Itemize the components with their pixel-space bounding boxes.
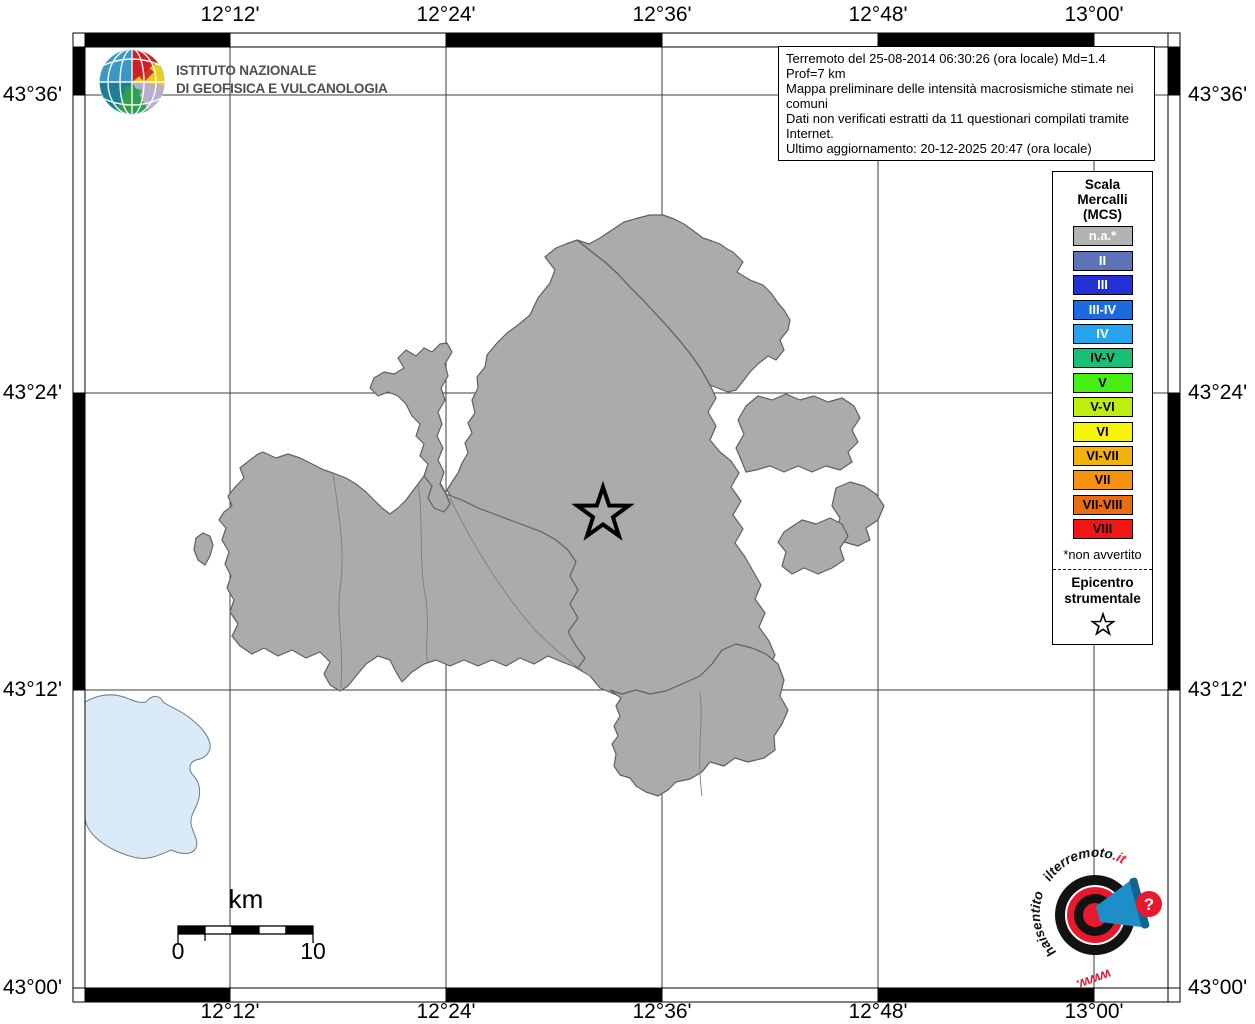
axis-label-top: 12°24' bbox=[384, 3, 508, 27]
axis-label-top: 12°48' bbox=[816, 3, 940, 27]
legend-swatch-iv: IV bbox=[1073, 324, 1133, 344]
legend-epicenter-line: Epicentro bbox=[1053, 575, 1152, 591]
earthquake-info-box: Terremoto del 25-08-2014 06:30:26 (ora l… bbox=[778, 46, 1155, 161]
legend-swatch-v: V bbox=[1073, 373, 1133, 393]
legend-swatch-vi-vii: VI-VII bbox=[1073, 446, 1133, 466]
macroseismic-map-page: 12°12' 12°24' 12°36' 12°48' 13°00' 12°12… bbox=[0, 0, 1255, 1024]
legend-title-line: Scala bbox=[1053, 177, 1152, 192]
legend-epicenter-line: strumentale bbox=[1053, 591, 1152, 607]
watermark-arc-left-text: haisentito bbox=[1028, 889, 1059, 960]
legend-title-line: (MCS) bbox=[1053, 207, 1152, 222]
axis-label-bottom: 12°48' bbox=[816, 1000, 940, 1024]
axis-label-bottom: 12°24' bbox=[384, 1000, 508, 1024]
legend-divider bbox=[1053, 569, 1152, 570]
legend-swatch-v-vi: V-VI bbox=[1073, 397, 1133, 417]
scale-bar-start: 0 bbox=[158, 938, 198, 965]
axis-label-bottom: 12°12' bbox=[168, 1000, 292, 1024]
axis-label-right: 43°36' bbox=[1188, 83, 1255, 107]
legend-epicenter-star-icon bbox=[1089, 611, 1117, 639]
question-mark-icon: ? bbox=[1144, 895, 1154, 914]
municipality-east-1 bbox=[736, 394, 860, 472]
ingv-globe-logo bbox=[96, 46, 168, 118]
info-line-update: Ultimo aggiornamento: 20-12-2025 20:47 (… bbox=[786, 141, 1147, 156]
info-line-source: Dati non verificati estratti da 11 quest… bbox=[786, 111, 1147, 141]
legend-title-line: Mercalli bbox=[1053, 192, 1152, 207]
ingv-logo-text: ISTITUTO NAZIONALE DI GEOFISICA E VULCAN… bbox=[176, 62, 388, 98]
scale-bar-end: 10 bbox=[293, 938, 333, 965]
legend-footnote: *non avvertito bbox=[1053, 547, 1152, 562]
axis-label-left: 43°36' bbox=[0, 83, 62, 107]
legend-swatch-vii: VII bbox=[1073, 470, 1133, 490]
lake-shape bbox=[85, 695, 210, 859]
axis-label-bottom: 13°00' bbox=[1032, 1000, 1156, 1024]
axis-label-right: 43°12' bbox=[1188, 678, 1255, 702]
legend-swatch-ii: II bbox=[1073, 251, 1133, 271]
axis-label-top: 13°00' bbox=[1032, 3, 1156, 27]
legend-swatch-iii: III bbox=[1073, 275, 1133, 295]
ingv-logo-line1: ISTITUTO NAZIONALE bbox=[176, 62, 388, 80]
info-line-event: Terremoto del 25-08-2014 06:30:26 (ora l… bbox=[786, 51, 1147, 81]
legend-title: Scala Mercalli (MCS) bbox=[1053, 177, 1152, 222]
mercalli-legend: Scala Mercalli (MCS) n.a.* II III III-IV… bbox=[1052, 171, 1153, 645]
legend-swatch-iii-iv: III-IV bbox=[1073, 300, 1133, 320]
legend-swatch-viii: VIII bbox=[1073, 519, 1133, 539]
axis-label-top: 12°12' bbox=[168, 3, 292, 27]
axis-label-right: 43°24' bbox=[1188, 381, 1255, 405]
axis-label-right: 43°00' bbox=[1188, 976, 1255, 1000]
haisentito-watermark-logo: ? haisentito ilterremoto.it www. bbox=[1028, 848, 1168, 993]
ingv-logo-line2: DI GEOFISICA E VULCANOLOGIA bbox=[176, 80, 388, 98]
axis-label-left: 43°00' bbox=[0, 976, 62, 1000]
axis-label-bottom: 12°36' bbox=[600, 1000, 724, 1024]
watermark-www-text: www. bbox=[1074, 966, 1113, 993]
axis-label-top: 12°36' bbox=[600, 3, 724, 27]
legend-swatch-na: n.a.* bbox=[1073, 226, 1133, 246]
legend-swatch-vii-viii: VII-VIII bbox=[1073, 495, 1133, 515]
info-line-maptype: Mappa preliminare delle intensità macros… bbox=[786, 81, 1147, 111]
legend-swatch-iv-v: IV-V bbox=[1073, 348, 1133, 368]
legend-swatch-vi: VI bbox=[1073, 422, 1133, 442]
axis-label-left: 43°24' bbox=[0, 381, 62, 405]
scale-bar-unit: km bbox=[216, 884, 276, 915]
legend-epicenter-label: Epicentro strumentale bbox=[1053, 575, 1152, 606]
axis-label-left: 43°12' bbox=[0, 678, 62, 702]
